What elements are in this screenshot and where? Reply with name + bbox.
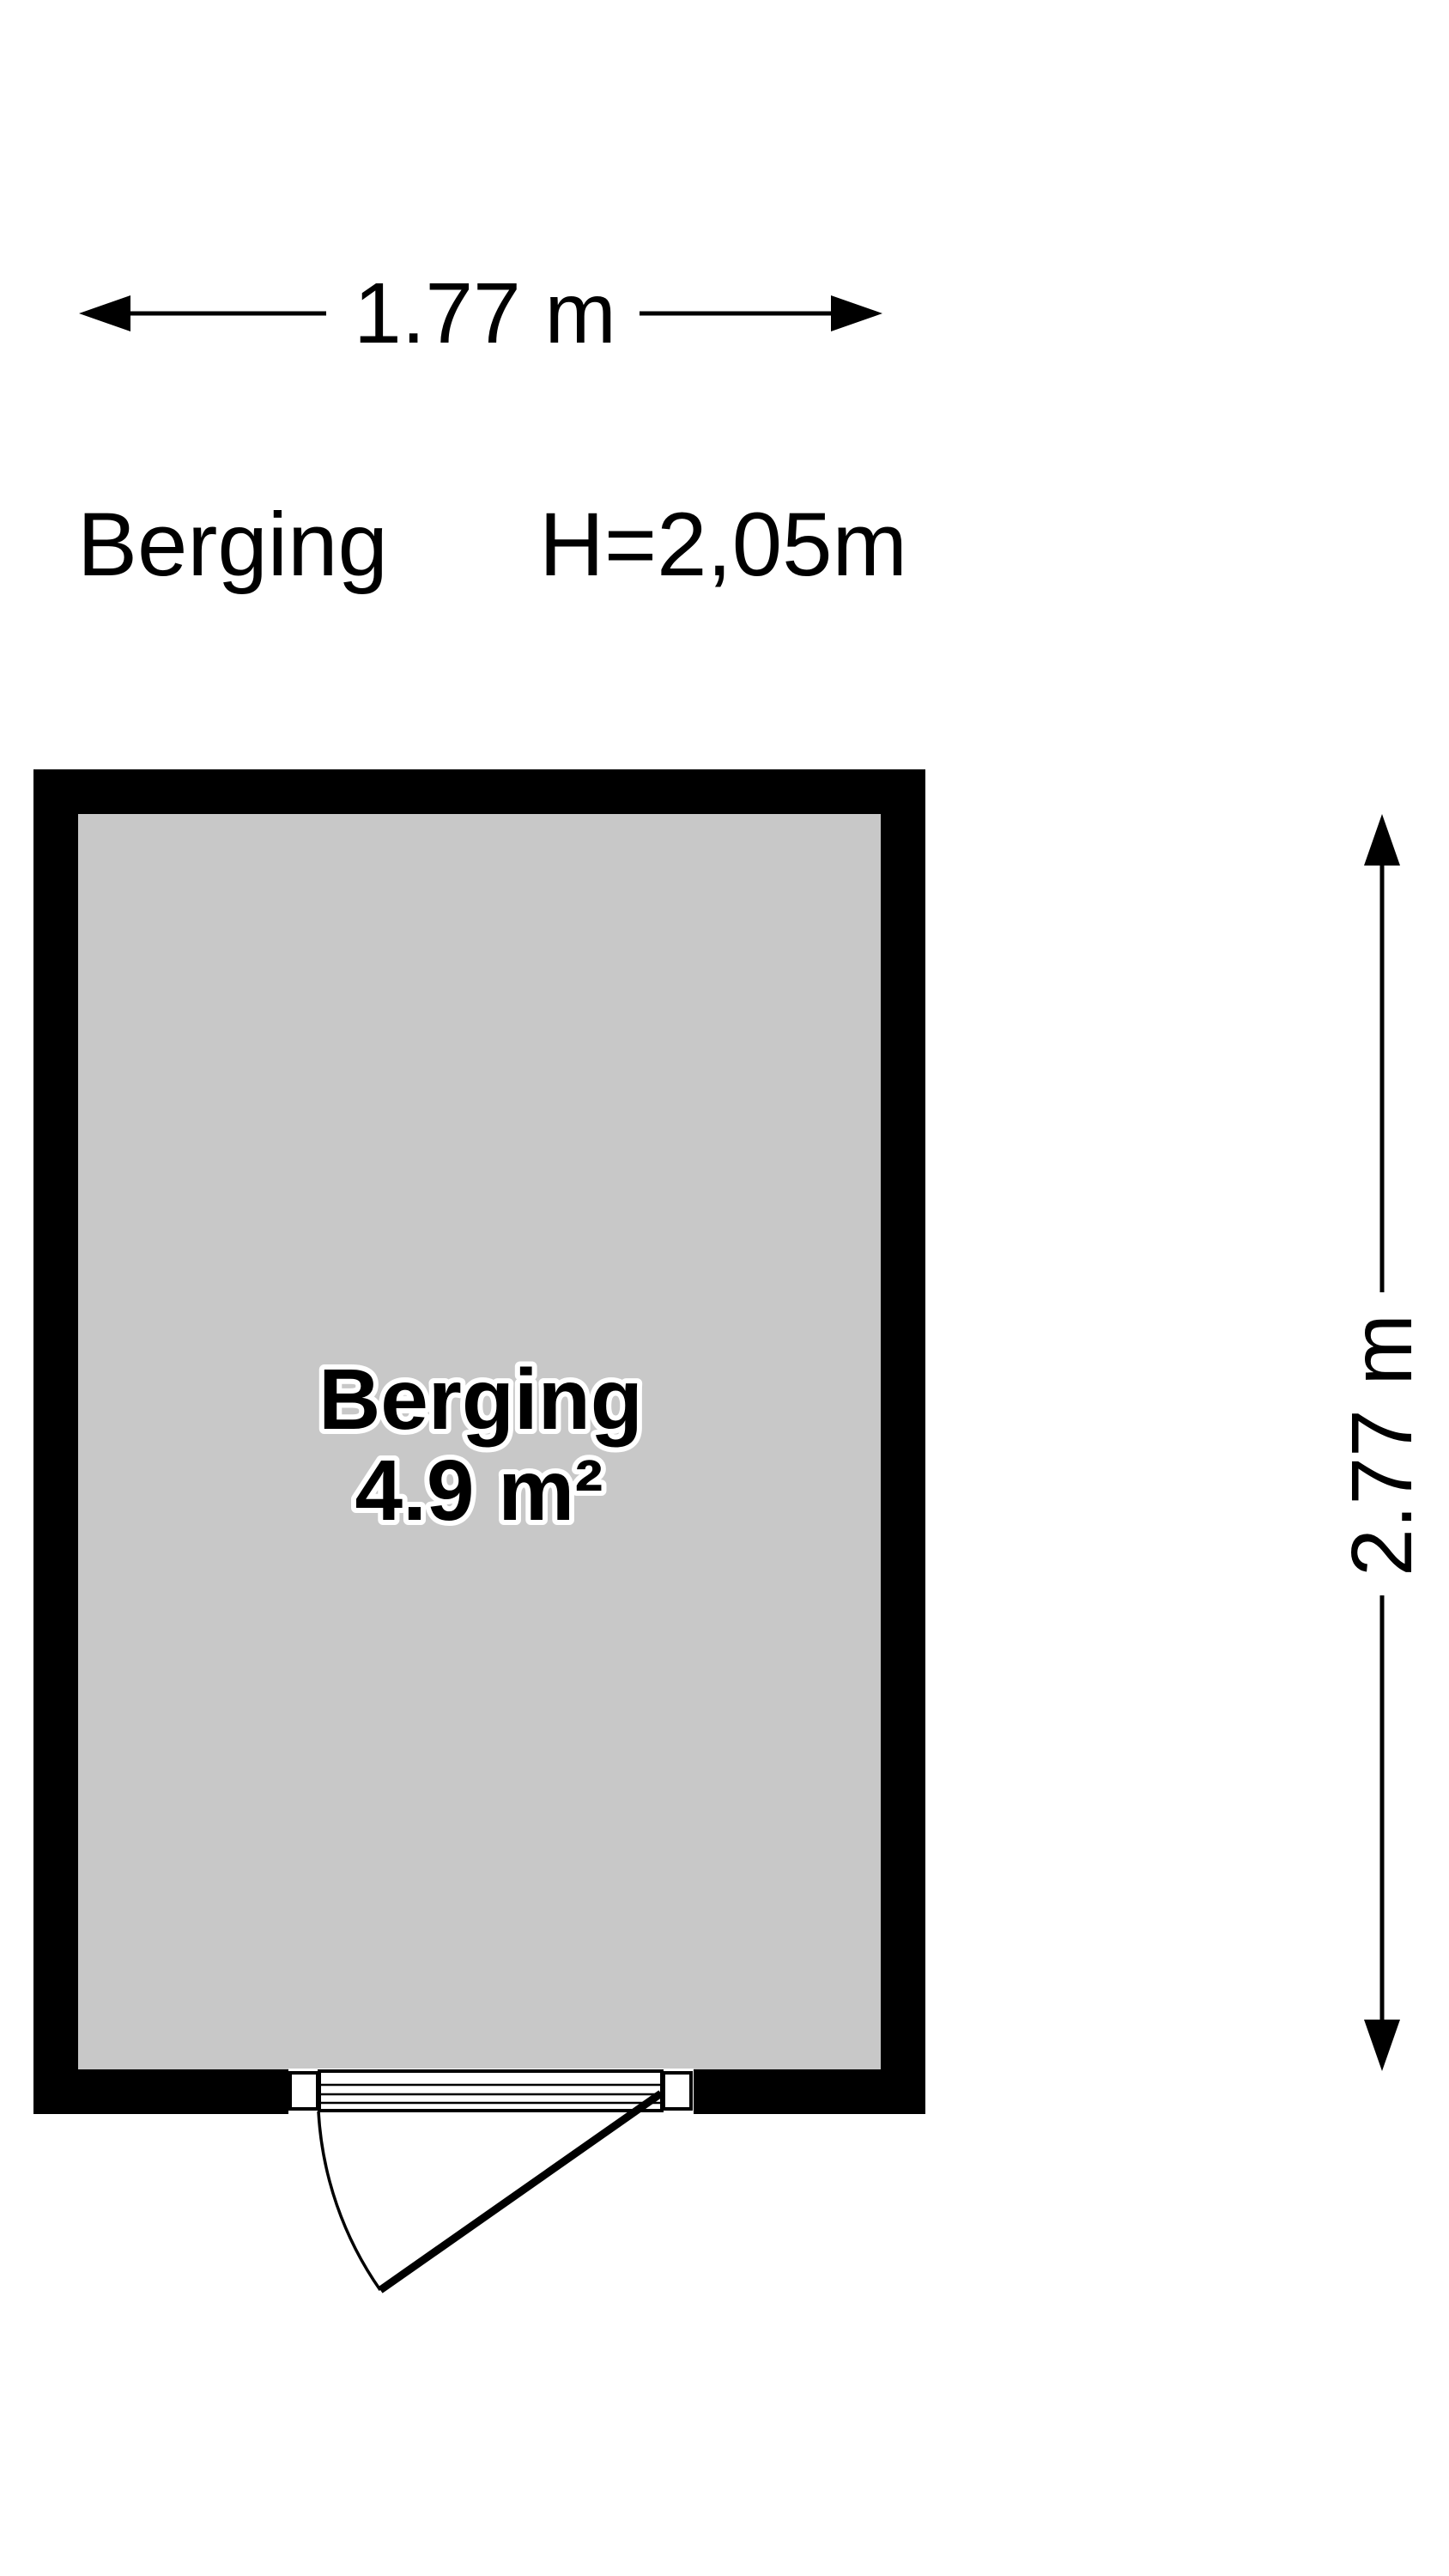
room-name-label: Berging [318, 1352, 643, 1448]
door-jamb-left [290, 2073, 318, 2109]
door [288, 2069, 694, 2290]
width-dimension: 1.77 m [79, 265, 882, 361]
floorplan-drawing: 1.77 m Berging H=2,05m Berging [0, 0, 1449, 2576]
room-title: Berging [77, 495, 388, 595]
ceiling-height-label: H=2,05m [539, 495, 907, 595]
arrow-down-icon [1364, 2020, 1400, 2071]
door-leaf [380, 2093, 661, 2290]
depth-dimension: 2.77 m [1334, 814, 1430, 2071]
door-jamb-right [664, 2073, 691, 2109]
arrow-up-icon [1364, 814, 1400, 866]
arrow-right-icon [831, 295, 882, 331]
depth-dimension-label: 2.77 m [1334, 1314, 1430, 1577]
arrow-left-icon [79, 295, 130, 331]
room-area-label: 4.9 m² [355, 1443, 603, 1539]
floorplan-canvas: 1.77 m Berging H=2,05m Berging [0, 0, 1449, 2576]
door-swing-arc [318, 2111, 380, 2290]
width-dimension-label: 1.77 m [354, 265, 616, 361]
door-threshold [319, 2071, 662, 2111]
